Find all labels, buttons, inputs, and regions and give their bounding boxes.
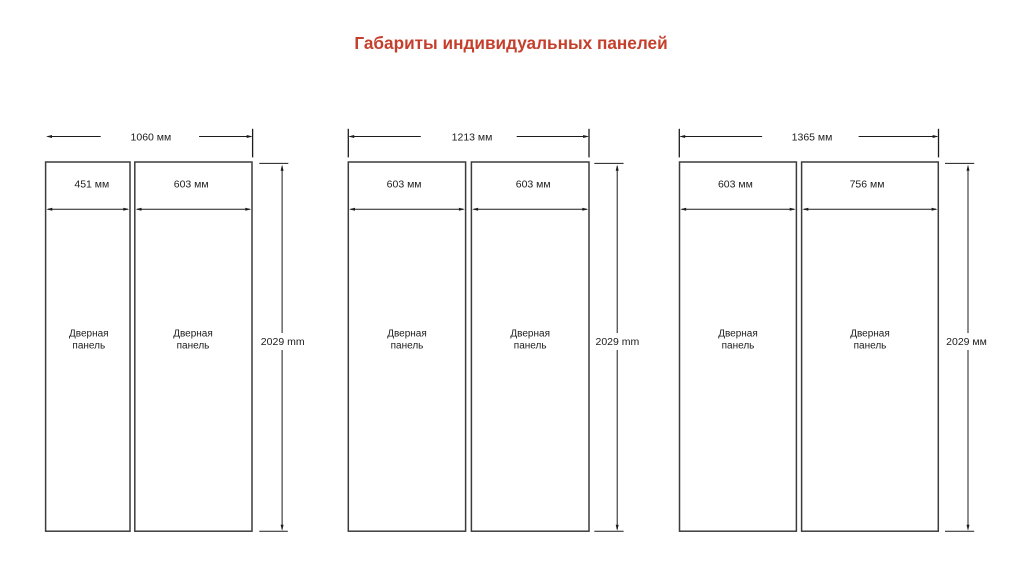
svg-text:панель: панель — [391, 340, 424, 351]
svg-text:603 мм: 603 мм — [174, 179, 209, 191]
svg-text:1365 мм: 1365 мм — [792, 132, 833, 144]
svg-text:панель: панель — [854, 340, 887, 351]
svg-text:Дверная: Дверная — [387, 328, 427, 339]
svg-text:панель: панель — [72, 340, 105, 351]
svg-text:603 мм: 603 мм — [516, 179, 551, 191]
svg-text:панель: панель — [177, 340, 210, 351]
svg-text:Дверная: Дверная — [510, 328, 550, 339]
svg-text:1213 мм: 1213 мм — [452, 132, 493, 144]
svg-text:1060 мм: 1060 мм — [131, 132, 172, 144]
svg-text:Дверная: Дверная — [173, 328, 213, 339]
svg-text:756 мм: 756 мм — [850, 179, 885, 191]
svg-text:Габариты индивидуальных панеле: Габариты индивидуальных панелей — [354, 33, 667, 53]
svg-text:панель: панель — [722, 340, 755, 351]
svg-text:2029 мм: 2029 мм — [946, 336, 987, 348]
svg-text:603 мм: 603 мм — [387, 179, 422, 191]
svg-text:Дверная: Дверная — [718, 328, 758, 339]
svg-text:2029 mm: 2029 mm — [261, 336, 305, 348]
svg-text:603 мм: 603 мм — [718, 179, 753, 191]
svg-text:451 мм: 451 мм — [74, 179, 109, 191]
svg-text:Дверная: Дверная — [850, 328, 890, 339]
svg-text:Дверная: Дверная — [69, 328, 109, 339]
svg-text:2029 mm: 2029 mm — [596, 336, 640, 348]
svg-text:панель: панель — [514, 340, 547, 351]
